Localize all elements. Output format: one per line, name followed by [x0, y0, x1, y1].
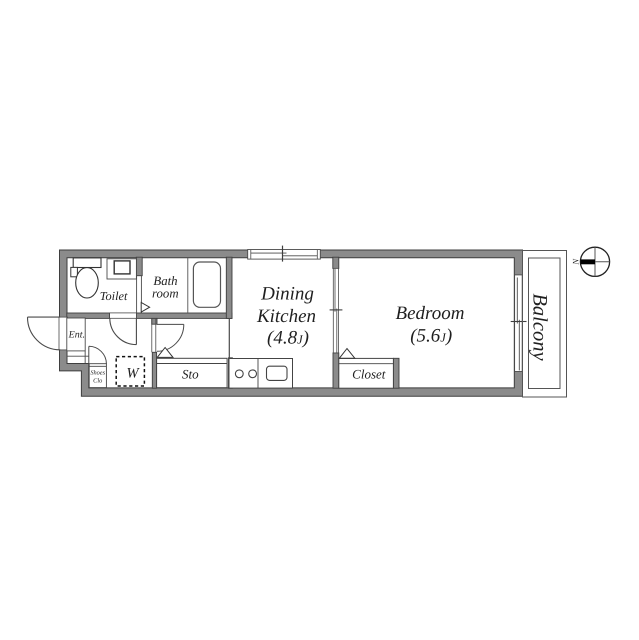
svg-text:Sto: Sto — [182, 367, 199, 382]
svg-text:N: N — [570, 258, 580, 266]
svg-text:Closet: Closet — [352, 367, 386, 382]
svg-text:W: W — [126, 366, 140, 382]
svg-text:Shoes: Shoes — [90, 370, 105, 377]
svg-text:room: room — [152, 286, 179, 300]
svg-text:(4.8J): (4.8J) — [267, 328, 309, 349]
svg-text:Dining: Dining — [260, 283, 314, 304]
svg-text:Ent.: Ent. — [68, 330, 85, 341]
svg-text:Toilet: Toilet — [100, 289, 128, 303]
svg-text:(5.6J): (5.6J) — [410, 325, 452, 346]
svg-text:Bedroom: Bedroom — [396, 303, 465, 324]
svg-text:Kitchen: Kitchen — [256, 306, 316, 327]
svg-text:Balcony: Balcony — [529, 293, 551, 361]
svg-text:Clo: Clo — [93, 378, 102, 385]
